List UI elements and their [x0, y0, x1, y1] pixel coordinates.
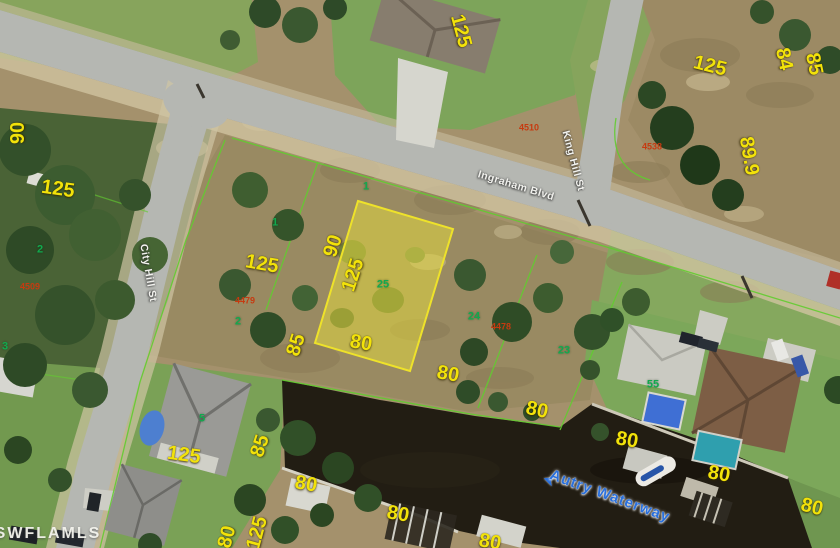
aerial-basemap [0, 0, 840, 548]
aerial-map-photo: ➤ 90125125125848589.91259012580858080808… [0, 0, 840, 548]
pool [642, 392, 685, 429]
